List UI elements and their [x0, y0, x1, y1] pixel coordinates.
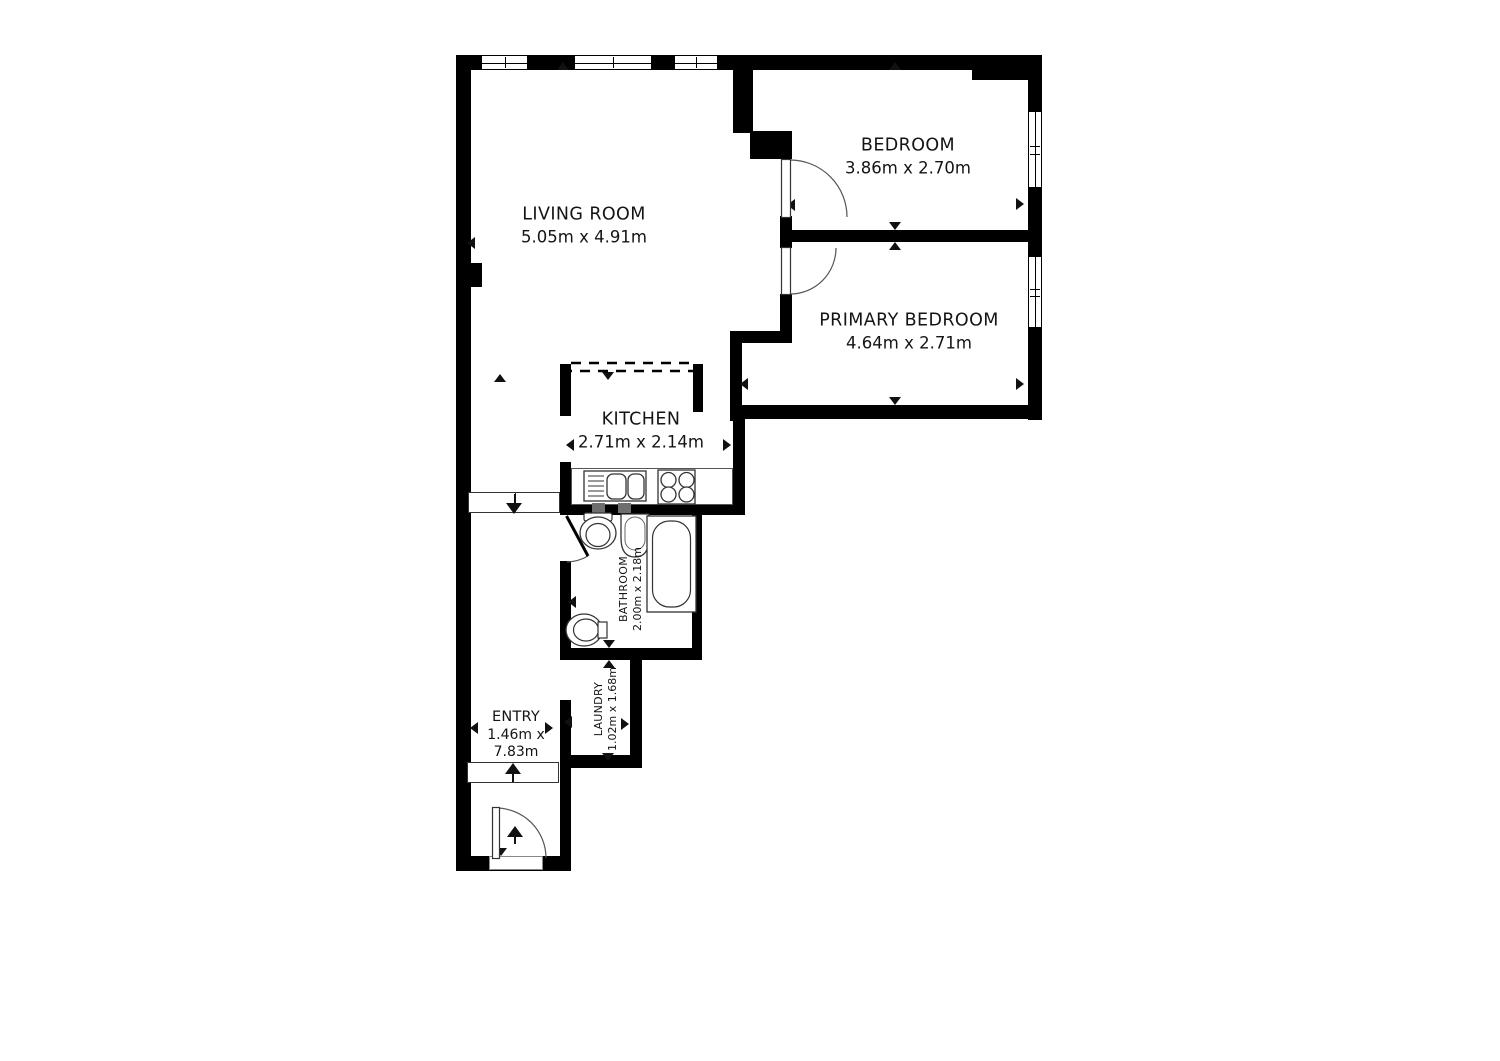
room-name: BATHROOM	[617, 547, 630, 631]
room-label-entry: ENTRY 1.46m x 7.83m	[487, 709, 545, 761]
entry-door-threshold	[489, 856, 543, 870]
toilet	[580, 513, 616, 549]
window-living-2	[574, 55, 652, 70]
dimension-arrow	[889, 62, 901, 70]
room-dimensions: 2.71m x 2.14m	[578, 433, 704, 453]
wall-bedroom-divider	[780, 230, 1032, 242]
dimension-arrow	[1016, 378, 1024, 390]
primary-bedroom-door	[782, 248, 837, 295]
room-label-primary-bedroom: PRIMARY BEDROOM 4.64m x 2.71m	[819, 310, 999, 353]
step-arrow-stem	[512, 773, 514, 782]
dimension-arrow	[494, 374, 506, 382]
room-label-living-room: LIVING ROOM 5.05m x 4.91m	[521, 204, 647, 247]
wall-kitchen-left-upper	[560, 364, 571, 416]
dimension-arrow	[740, 378, 748, 390]
wall-bathroom-left	[560, 561, 571, 655]
kitchen-counter	[571, 468, 733, 505]
dimension-arrow	[603, 640, 615, 648]
room-dimensions-line2: 7.83m	[487, 744, 545, 761]
dimension-arrow	[723, 439, 731, 451]
wall-bathroom-right	[692, 513, 702, 660]
wall-pier-left	[468, 263, 482, 287]
window-primary-bedroom	[1028, 256, 1042, 328]
room-name: LIVING ROOM	[521, 204, 647, 225]
kitchen-open-divider	[571, 363, 694, 371]
room-name: PRIMARY BEDROOM	[819, 310, 999, 331]
window-living-1	[481, 55, 528, 70]
wall-exterior-right	[1028, 55, 1042, 420]
bathroom-door	[567, 516, 589, 562]
window-bedroom	[1028, 111, 1042, 188]
dimension-arrow	[467, 237, 475, 249]
bidet	[566, 614, 607, 646]
wall-living-right-upper	[733, 55, 753, 133]
dimension-arrow	[470, 722, 478, 734]
wall-primary-left-lower	[780, 294, 792, 334]
wall-kitchen-left-lower	[560, 462, 571, 508]
room-dimensions: 4.64m x 2.71m	[819, 334, 999, 354]
wall-exterior-left	[456, 55, 471, 871]
dimension-arrow	[568, 596, 576, 608]
dimension-arrow	[889, 397, 901, 405]
dimension-arrow	[621, 718, 629, 730]
dimension-arrow	[787, 199, 795, 211]
entry-arrow-stem	[514, 836, 516, 844]
dimension-arrow	[566, 439, 574, 451]
dimension-arrow	[889, 222, 901, 230]
room-dimensions: 2.00m x 2.18m	[632, 547, 645, 631]
dimension-arrow	[545, 722, 553, 734]
wall-primary-bottom	[730, 405, 1042, 419]
room-dimensions: 3.86m x 2.70m	[845, 159, 971, 179]
dimension-arrow	[564, 716, 572, 728]
bathtub	[647, 516, 696, 612]
dimension-arrow	[557, 62, 569, 70]
dimension-arrow	[602, 753, 614, 761]
room-label-bedroom: BEDROOM 3.86m x 2.70m	[845, 135, 971, 178]
wall-laundry-right	[630, 655, 642, 768]
room-name: LAUNDRY	[592, 667, 605, 751]
room-label-laundry: LAUNDRY 1.02m x 1.68m	[592, 667, 620, 751]
room-name: ENTRY	[487, 709, 545, 727]
dimension-arrow	[889, 242, 901, 250]
wall-step-bedroom	[750, 131, 792, 159]
dimension-arrow	[1016, 198, 1024, 210]
dimension-arrow	[495, 848, 507, 856]
wall-kitchen-right-stub	[693, 364, 703, 412]
room-dimensions: 5.05m x 4.91m	[521, 228, 647, 248]
wall-kitchen-right-lower	[733, 419, 745, 515]
room-dimensions-line1: 1.46m x	[487, 727, 545, 744]
room-name: KITCHEN	[578, 409, 704, 430]
window-living-3	[674, 55, 718, 70]
room-label-kitchen: KITCHEN 2.71m x 2.14m	[578, 409, 704, 452]
step-down-arrow	[506, 503, 522, 514]
room-name: BEDROOM	[845, 135, 971, 156]
floorplan-canvas: LIVING ROOM 5.05m x 4.91m BEDROOM 3.86m …	[0, 0, 1500, 1061]
dimension-arrow	[680, 597, 688, 609]
room-label-bathroom: BATHROOM 2.00m x 2.18m	[617, 547, 645, 631]
room-dimensions: 1.02m x 1.68m	[607, 667, 620, 751]
wall-laundry-bottom	[560, 755, 642, 768]
dimension-arrow	[602, 372, 614, 380]
